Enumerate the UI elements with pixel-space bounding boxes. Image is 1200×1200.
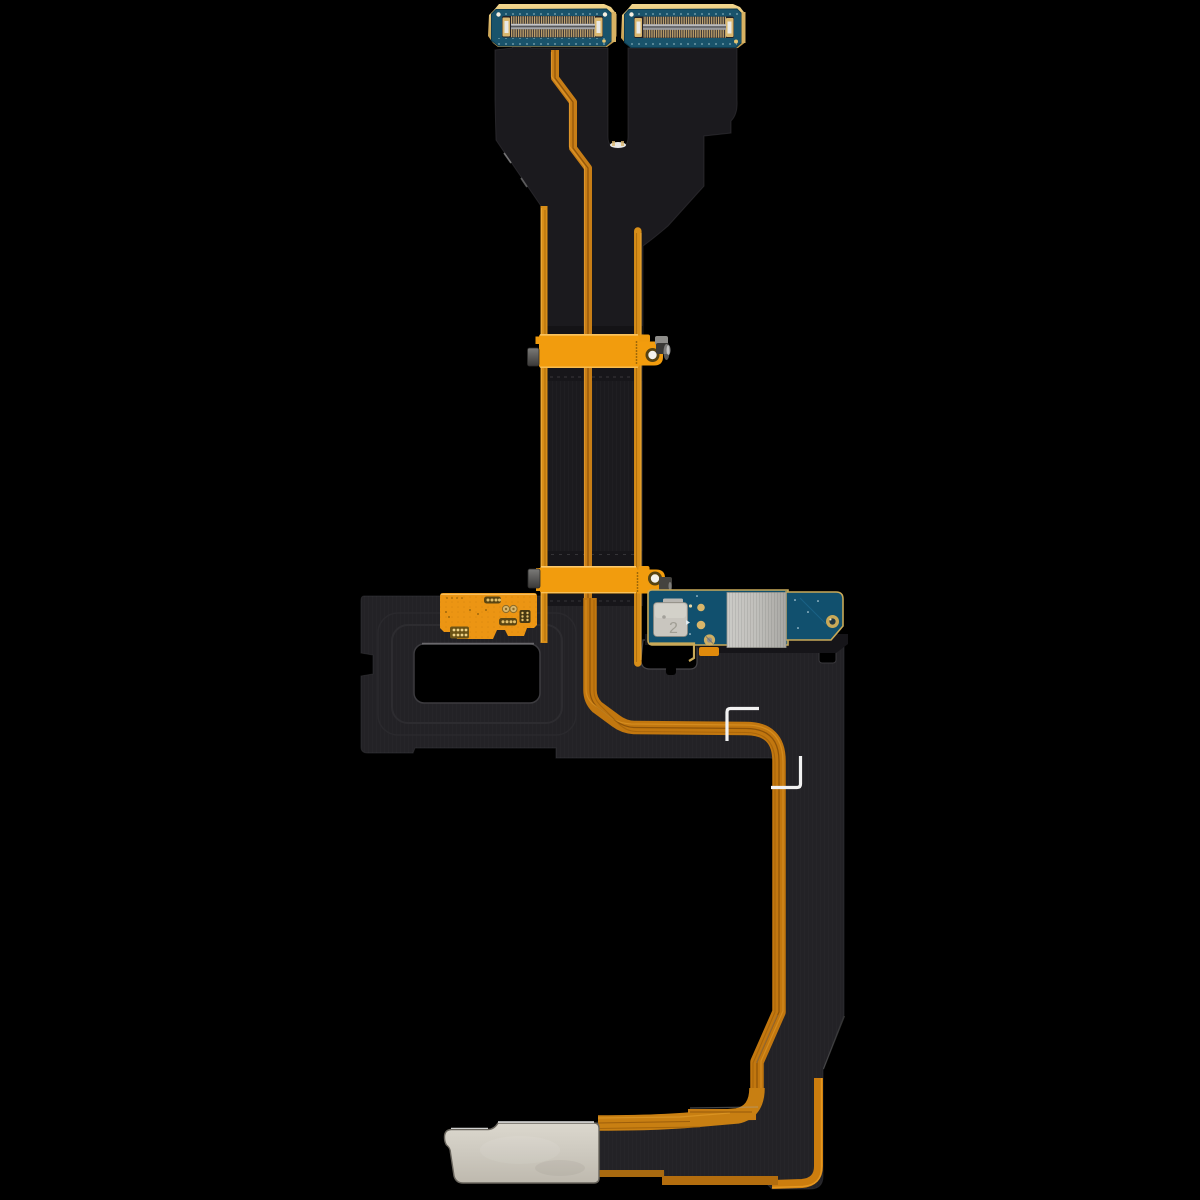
svg-text:2: 2 xyxy=(669,620,678,637)
